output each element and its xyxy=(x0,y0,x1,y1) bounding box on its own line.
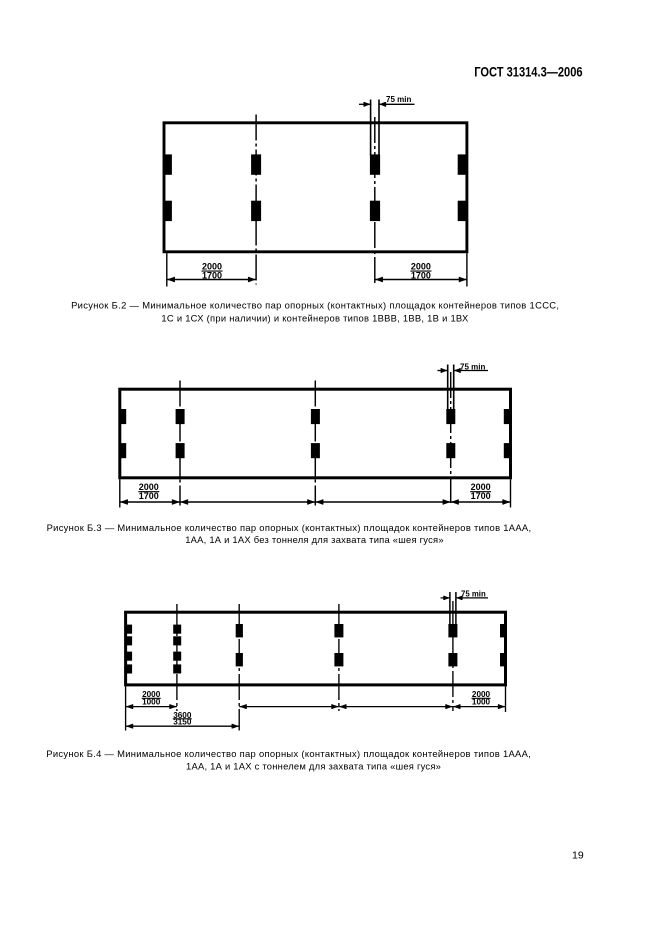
svg-text:1000: 1000 xyxy=(472,697,491,706)
svg-text:75 min: 75 min xyxy=(461,589,486,598)
svg-text:1000: 1000 xyxy=(142,697,161,706)
svg-text:1С и 1СХ (при наличии) и конте: 1С и 1СХ (при наличии) и контейнеров тип… xyxy=(161,312,469,323)
svg-text:1700: 1700 xyxy=(202,270,222,280)
svg-text:1700: 1700 xyxy=(411,270,431,280)
svg-text:75 min: 75 min xyxy=(460,362,485,371)
svg-text:1АА, 1А и 1АХ без тоннеля для: 1АА, 1А и 1АХ без тоннеля для захвата ти… xyxy=(185,534,444,545)
svg-text:3150: 3150 xyxy=(173,718,192,727)
svg-text:ГОСТ 31314.3—2006: ГОСТ 31314.3—2006 xyxy=(474,65,583,80)
svg-text:Рисунок Б.2 — Минимальное коли: Рисунок Б.2 — Минимальное количество пар… xyxy=(71,300,559,311)
svg-text:Рисунок Б.3 — Минимальное коли: Рисунок Б.3 — Минимальное количество пар… xyxy=(47,522,532,533)
svg-text:Рисунок Б.4 — Минимальное коли: Рисунок Б.4 — Минимальное количество пар… xyxy=(46,748,531,759)
svg-text:1АА, 1А и 1АХ с тоннелем для з: 1АА, 1А и 1АХ с тоннелем для захвата тип… xyxy=(186,761,441,772)
svg-text:19: 19 xyxy=(572,850,584,862)
svg-text:1700: 1700 xyxy=(139,491,159,501)
svg-text:75 min: 75 min xyxy=(386,95,411,104)
svg-text:1700: 1700 xyxy=(471,491,491,501)
